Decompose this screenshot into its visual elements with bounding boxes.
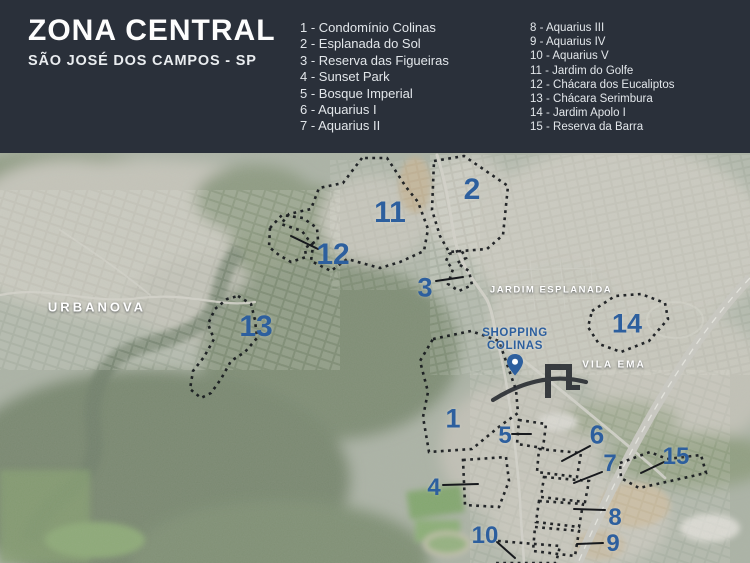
legend-column-2: 8 - Aquarius III9 - Aquarius IV10 - Aqua… [530, 21, 674, 135]
legend-item: 8 - Aquarius III [530, 21, 674, 35]
legend-item: 15 - Reserva da Barra [530, 120, 674, 134]
legend-item: 5 - Bosque Imperial [300, 86, 449, 102]
page-title: ZONA CENTRAL [28, 14, 276, 48]
legend-item: 13 - Chácara Serimbura [530, 92, 674, 106]
title-block: ZONA CENTRAL SÃO JOSÉ DOS CAMPOS - SP [28, 14, 276, 69]
page-subtitle: SÃO JOSÉ DOS CAMPOS - SP [28, 53, 276, 69]
legend-column-1: 1 - Condomínio Colinas2 - Esplanada do S… [300, 20, 449, 135]
legend-item: 1 - Condomínio Colinas [300, 20, 449, 36]
legend-item: 3 - Reserva das Figueiras [300, 53, 449, 69]
satellite-map [0, 153, 750, 563]
legend-item: 10 - Aquarius V [530, 49, 674, 63]
legend-item: 9 - Aquarius IV [530, 35, 674, 49]
legend-item: 4 - Sunset Park [300, 69, 449, 85]
legend-item: 6 - Aquarius I [300, 102, 449, 118]
legend-item: 14 - Jardim Apolo I [530, 106, 674, 120]
legend-item: 7 - Aquarius II [300, 118, 449, 134]
legend-item: 12 - Chácara dos Eucaliptos [530, 78, 674, 92]
satellite-art [0, 153, 750, 563]
legend-item: 2 - Esplanada do Sol [300, 36, 449, 52]
legend-item: 11 - Jardim do Golfe [530, 64, 674, 78]
header: ZONA CENTRAL SÃO JOSÉ DOS CAMPOS - SP 1 … [0, 0, 750, 153]
zona-central-infographic: ZONA CENTRAL SÃO JOSÉ DOS CAMPOS - SP 1 … [0, 0, 750, 563]
